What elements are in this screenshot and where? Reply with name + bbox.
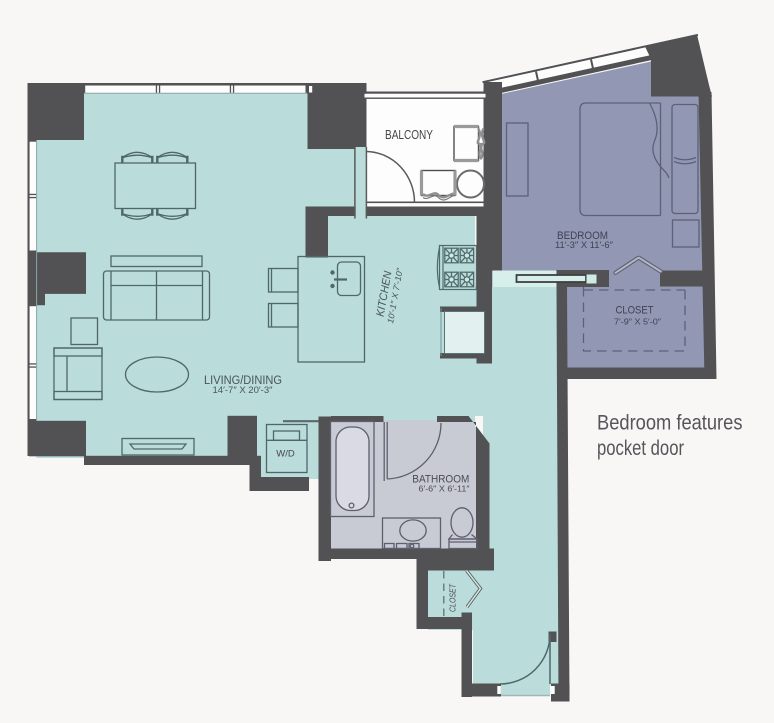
svg-text:CLOSET: CLOSET bbox=[616, 304, 654, 316]
svg-text:Bedroom features: Bedroom features bbox=[597, 411, 743, 435]
svg-text:BALCONY: BALCONY bbox=[385, 128, 433, 142]
svg-text:CLOSET: CLOSET bbox=[448, 583, 458, 612]
svg-text:11′-3″ X 11′-6″: 11′-3″ X 11′-6″ bbox=[555, 240, 613, 250]
svg-text:pocket door: pocket door bbox=[597, 436, 684, 460]
svg-text:6′-6″ X 6′-11″: 6′-6″ X 6′-11″ bbox=[419, 484, 470, 494]
svg-text:7′-9″ X 5′-0″: 7′-9″ X 5′-0″ bbox=[614, 317, 661, 327]
svg-text:14′-7″ X 20′-3″: 14′-7″ X 20′-3″ bbox=[213, 385, 274, 395]
svg-text:W/D: W/D bbox=[276, 449, 295, 459]
